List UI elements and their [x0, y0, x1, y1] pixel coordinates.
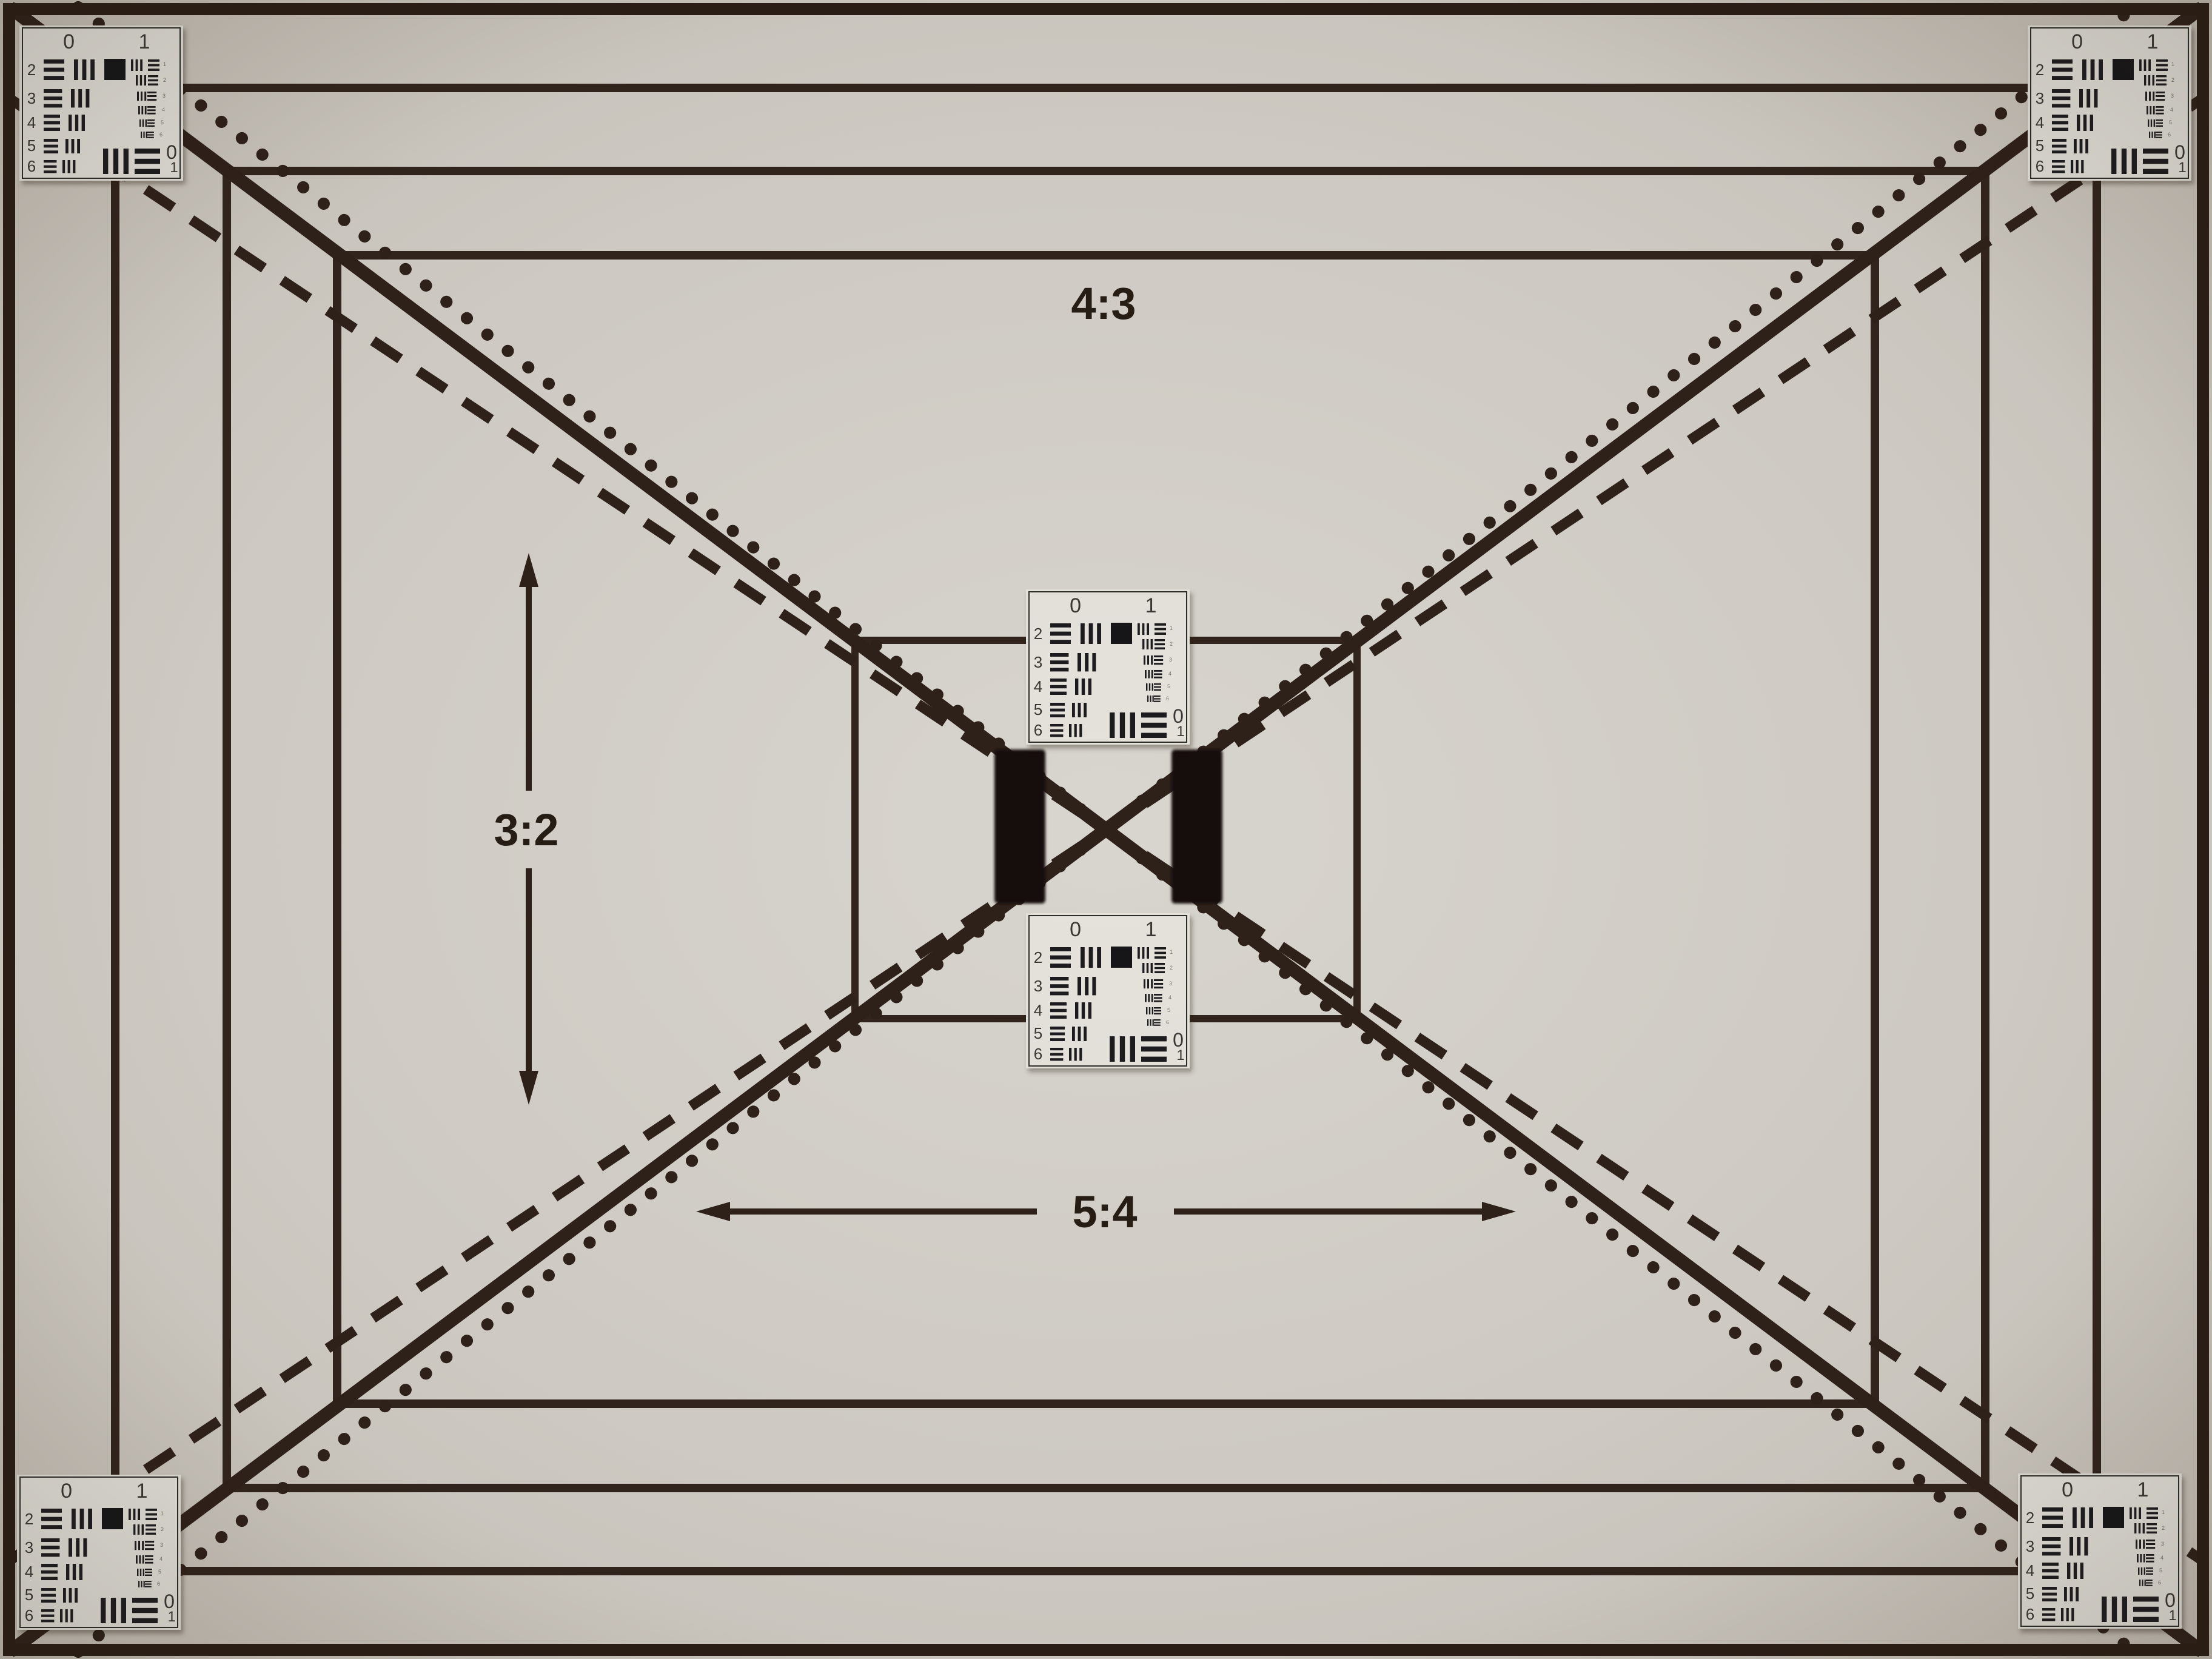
aspect-label-32: 3:2: [494, 805, 559, 855]
arrow-shaft-right: [1174, 1208, 1486, 1215]
usaf-target-center-upper: [1026, 589, 1190, 745]
velcro-patch-right: [1171, 749, 1222, 903]
usaf-target-bottom-right: [2018, 1473, 2182, 1629]
arrow-shaft-lower: [526, 868, 532, 1077]
aspect-label-54: 5:4: [1073, 1187, 1138, 1237]
usaf-target-top-right: [2028, 25, 2191, 181]
usaf-target-center-lower: [1026, 913, 1190, 1068]
arrow-shaft-left: [725, 1208, 1037, 1215]
aspect-label-43: 4:3: [1071, 278, 1136, 329]
lens-test-chart: 0 1: [0, 0, 2212, 1659]
usaf-target-bottom-left: [17, 1475, 181, 1630]
velcro-patch-left: [994, 749, 1045, 903]
arrow-shaft-upper: [526, 582, 532, 791]
usaf-target-top-left: [19, 25, 183, 181]
